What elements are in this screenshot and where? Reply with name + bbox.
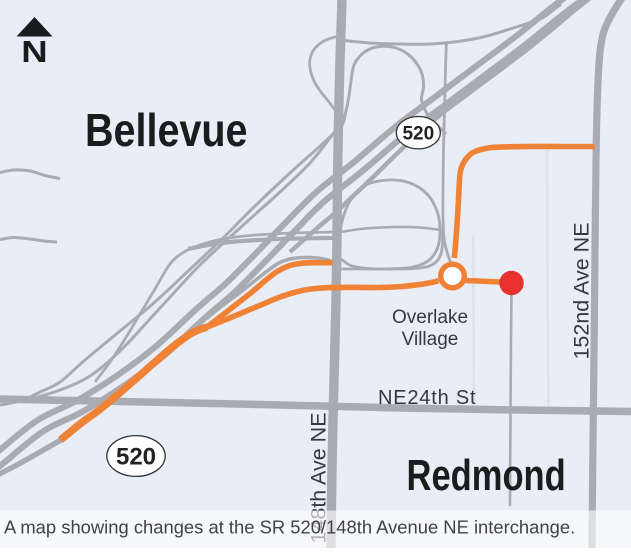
svg-text:152nd Ave NE: 152nd Ave NE <box>570 222 594 359</box>
svg-text:Redmond: Redmond <box>407 451 566 500</box>
svg-text:NE24th St: NE24th St <box>378 387 476 409</box>
svg-text:A map showing changes at the S: A map showing changes at the SR 520/148t… <box>4 517 575 538</box>
svg-text:Overlake: Overlake <box>392 307 468 328</box>
svg-text:520: 520 <box>402 124 434 145</box>
svg-text:520: 520 <box>116 444 156 471</box>
svg-text:N: N <box>21 36 47 69</box>
svg-text:Village: Village <box>402 329 459 350</box>
svg-text:Bellevue: Bellevue <box>85 105 248 157</box>
